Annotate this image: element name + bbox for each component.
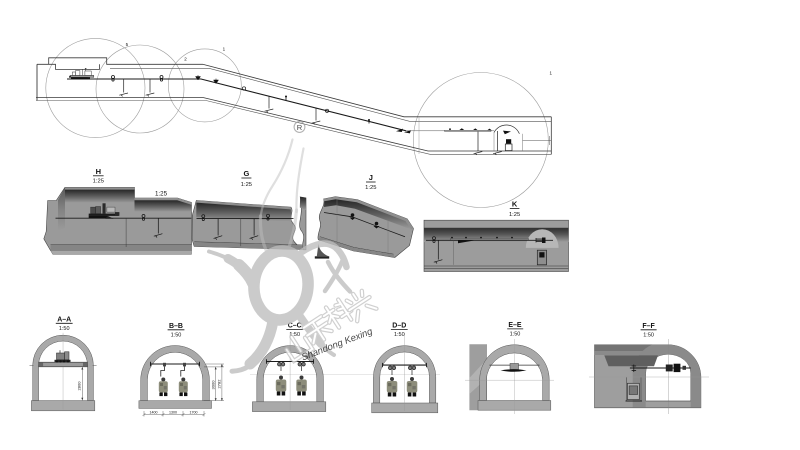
svg-text:1:50: 1:50 bbox=[394, 332, 405, 338]
svg-text:1300: 1300 bbox=[169, 411, 177, 415]
svg-text:1700: 1700 bbox=[190, 411, 198, 415]
svg-text:1:50: 1:50 bbox=[171, 332, 182, 338]
svg-text:1:25: 1:25 bbox=[155, 191, 168, 198]
svg-text:D–D: D–D bbox=[392, 323, 406, 330]
svg-text:1:50: 1:50 bbox=[510, 331, 521, 337]
svg-text:K: K bbox=[512, 200, 518, 209]
svg-text:B–B: B–B bbox=[169, 323, 183, 330]
svg-text:J: J bbox=[369, 173, 373, 182]
svg-text:E–E: E–E bbox=[508, 322, 522, 329]
svg-text:H: H bbox=[96, 167, 101, 176]
svg-text:A–A: A–A bbox=[57, 316, 71, 323]
svg-text:2800: 2800 bbox=[77, 381, 82, 391]
svg-text:1:25: 1:25 bbox=[365, 185, 376, 191]
svg-text:R: R bbox=[297, 123, 303, 132]
svg-text:1:50: 1:50 bbox=[59, 326, 70, 332]
svg-text:1:25: 1:25 bbox=[93, 179, 104, 185]
svg-text:F–F: F–F bbox=[642, 323, 655, 330]
svg-text:1:25: 1:25 bbox=[241, 182, 252, 188]
svg-text:1400: 1400 bbox=[150, 411, 158, 415]
svg-text:1:50: 1:50 bbox=[643, 332, 654, 338]
svg-text:2782: 2782 bbox=[217, 379, 222, 389]
svg-text:1:25: 1:25 bbox=[509, 212, 520, 218]
svg-text:G: G bbox=[243, 169, 249, 178]
svg-text:3000: 3000 bbox=[210, 380, 215, 390]
